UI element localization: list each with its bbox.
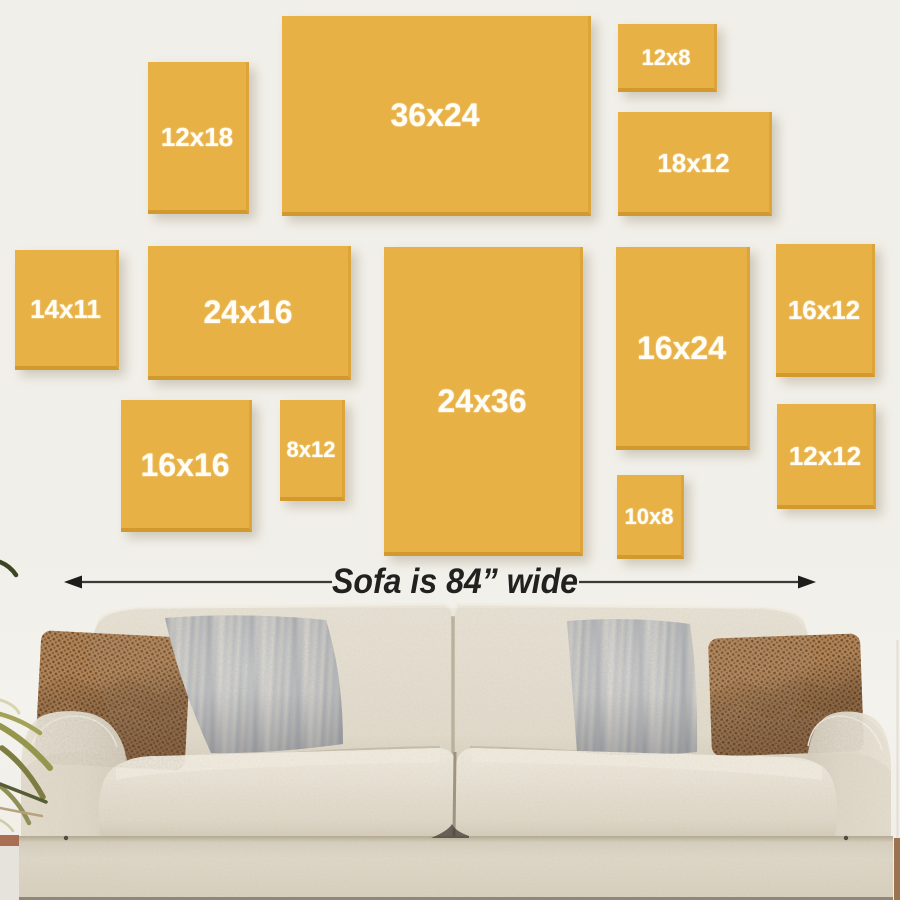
svg-text:Sofa is 84” wide: Sofa is 84” wide (332, 562, 578, 601)
